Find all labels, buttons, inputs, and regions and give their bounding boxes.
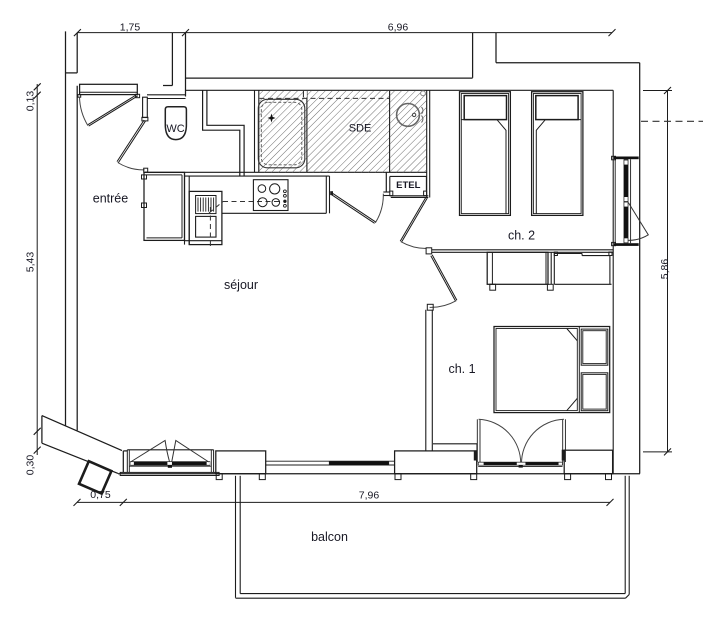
svg-text:1,75: 1,75: [120, 22, 141, 34]
svg-text:ch. 2: ch. 2: [508, 229, 535, 243]
svg-text:5,86: 5,86: [659, 259, 671, 280]
svg-text:WC: WC: [166, 123, 184, 135]
svg-text:séjour: séjour: [224, 278, 258, 292]
svg-text:5,43: 5,43: [25, 252, 37, 273]
svg-text:ch. 1: ch. 1: [448, 362, 475, 376]
svg-text:ETEL: ETEL: [396, 180, 420, 191]
svg-text:balcon: balcon: [311, 530, 348, 544]
svg-text:7,96: 7,96: [359, 490, 380, 502]
svg-text:SDE: SDE: [349, 123, 372, 135]
svg-text:entrée: entrée: [93, 192, 128, 206]
svg-text:0,13: 0,13: [25, 91, 37, 112]
svg-text:6,96: 6,96: [388, 22, 409, 34]
svg-text:0,30: 0,30: [25, 455, 37, 476]
